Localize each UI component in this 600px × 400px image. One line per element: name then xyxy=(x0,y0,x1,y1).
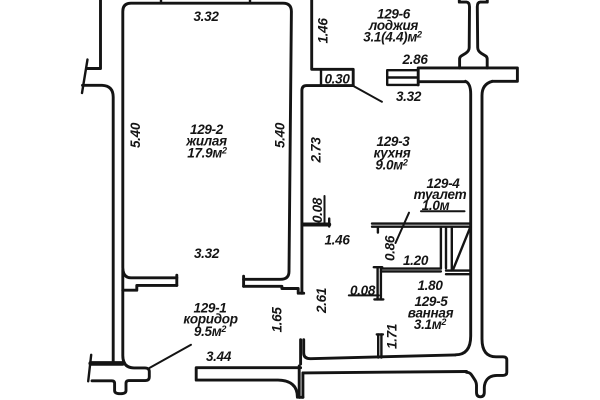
svg-text:5.40: 5.40 xyxy=(128,122,143,148)
svg-text:0.30: 0.30 xyxy=(324,72,350,87)
svg-text:1.80: 1.80 xyxy=(417,278,443,293)
svg-text:1.0м: 1.0м xyxy=(422,198,450,213)
svg-text:3.44: 3.44 xyxy=(206,349,232,364)
svg-text:3.1(4.4)м2: 3.1(4.4)м2 xyxy=(363,30,422,45)
svg-text:1.46: 1.46 xyxy=(324,233,350,248)
svg-text:1.65: 1.65 xyxy=(270,307,285,333)
svg-text:17.9м2: 17.9м2 xyxy=(187,146,227,161)
svg-text:5.40: 5.40 xyxy=(273,122,288,148)
svg-text:2.61: 2.61 xyxy=(314,288,329,314)
svg-text:1.71: 1.71 xyxy=(385,324,400,349)
svg-text:1.20: 1.20 xyxy=(403,253,429,268)
svg-text:0.08: 0.08 xyxy=(350,283,376,298)
svg-text:1.46: 1.46 xyxy=(316,18,331,44)
svg-text:3.32: 3.32 xyxy=(194,246,220,261)
svg-text:0.08: 0.08 xyxy=(310,197,325,223)
svg-text:3.32: 3.32 xyxy=(193,9,219,24)
svg-text:2.73: 2.73 xyxy=(309,137,324,164)
svg-text:0.86: 0.86 xyxy=(383,235,398,261)
svg-text:2.86: 2.86 xyxy=(401,52,428,67)
svg-text:3.32: 3.32 xyxy=(396,89,422,104)
